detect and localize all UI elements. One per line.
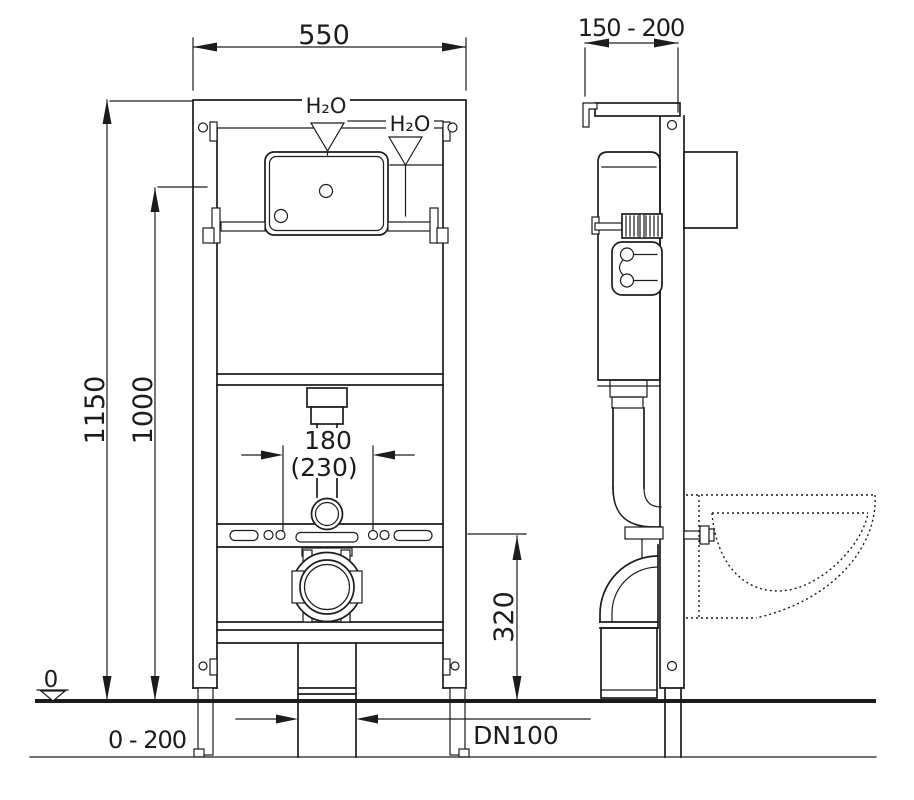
wall-plate — [684, 152, 737, 228]
bolt-hole — [668, 662, 677, 671]
dim-drain: DN100 — [236, 715, 590, 751]
access-panel — [612, 242, 662, 295]
support-bar — [388, 222, 431, 231]
bolt-hole — [451, 662, 459, 670]
dim-inner-height-label: 1000 — [128, 376, 159, 445]
dim-frame-width: 550 — [193, 20, 466, 90]
flush-pipe-side — [613, 408, 663, 539]
toilet-bowl-outline — [686, 495, 875, 618]
adjustable-foot — [450, 688, 465, 755]
datum-symbol: 0 — [37, 667, 68, 701]
side-foot — [665, 688, 681, 757]
dim-depth: 150 - 200 — [578, 14, 685, 112]
bolt-hole — [668, 121, 677, 130]
cistern — [203, 152, 448, 243]
dim-total-height-label: 1150 — [80, 376, 111, 445]
front-view: H₂O H₂O — [193, 93, 469, 757]
dim-flush-offset-alt-label: (230) — [290, 453, 357, 482]
side-view — [583, 103, 875, 757]
water-supply-triangle-icon — [389, 137, 422, 165]
bolt-hole — [199, 662, 207, 670]
water-supply-triangle-icon — [311, 123, 344, 151]
cross-rail — [217, 374, 443, 385]
side-rail — [660, 116, 684, 688]
lower-rail — [217, 622, 443, 643]
dim-depth-label: 150 - 200 — [578, 14, 685, 42]
dim-outlet-height: 320 — [468, 534, 526, 700]
water-supply-label-1: H₂O — [306, 94, 347, 118]
flush-valve — [592, 214, 662, 238]
water-supply-label-2: H₂O — [390, 112, 431, 136]
support-bar — [221, 222, 265, 231]
drain-bend-side — [600, 539, 658, 698]
dim-drain-label: DN100 — [473, 721, 559, 750]
adjustable-foot — [198, 688, 213, 755]
technical-drawing-page: H₂O H₂O — [0, 0, 914, 800]
wc-installation-frame-drawing: H₂O H₂O — [0, 0, 914, 800]
dim-foot-range-label: 0 - 200 — [108, 726, 186, 754]
dim-outlet-height-label: 320 — [489, 591, 520, 643]
drain-elbow-front — [292, 548, 362, 622]
frame-clip — [210, 122, 217, 141]
top-bar — [595, 103, 680, 116]
dim-frame-width-label: 550 — [298, 20, 350, 51]
frame-feet — [193, 659, 469, 757]
dim-flush-offset-label: 180 — [304, 426, 352, 455]
bolt-hole — [448, 123, 457, 132]
floor-datum-label: 0 — [44, 667, 59, 693]
mounting-slots — [230, 531, 432, 543]
dim-inner-height: 1000 — [128, 187, 207, 700]
bolt-hole — [199, 123, 208, 132]
